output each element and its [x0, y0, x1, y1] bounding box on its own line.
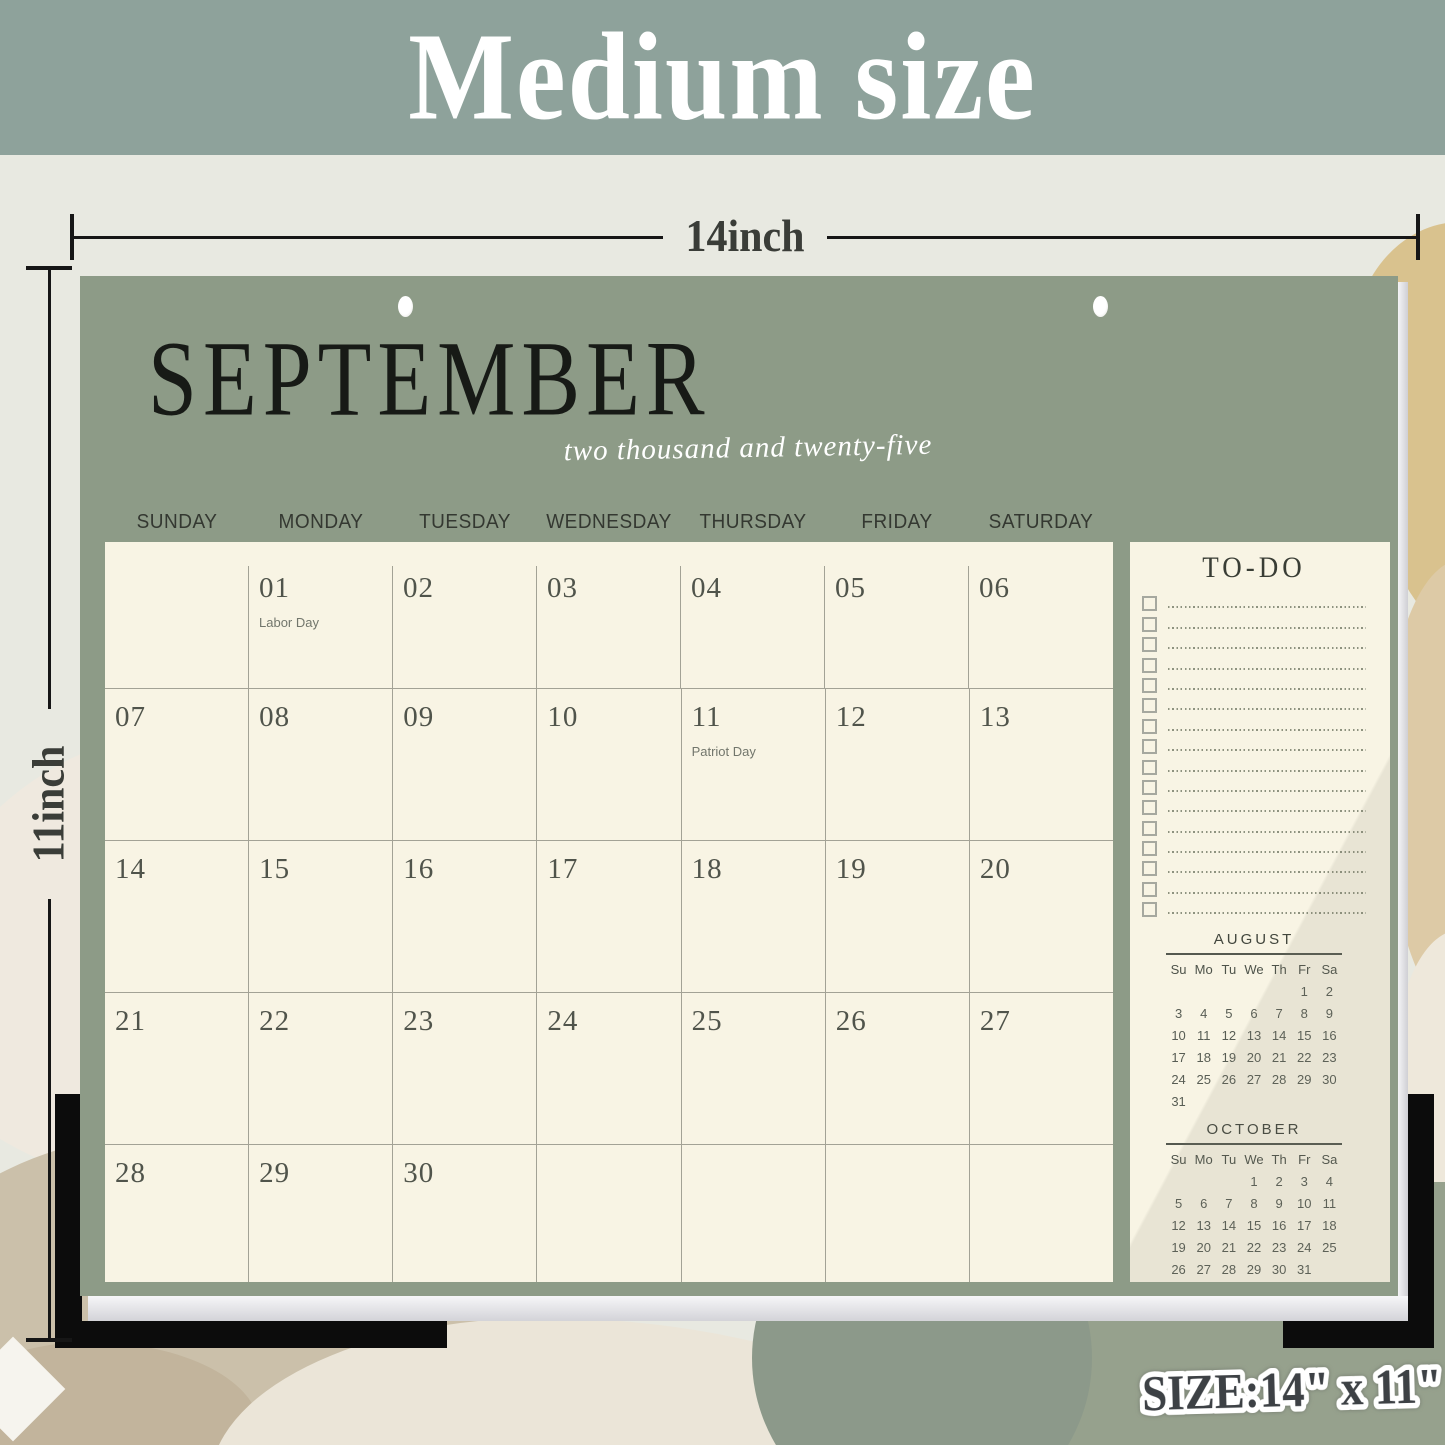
day-cell-20: 20 [969, 841, 1113, 992]
mini-calendar-august: AUGUSTSuMoTuWeThFrSa12345678910111213141… [1166, 931, 1342, 1113]
mini-day-23: 23 [1317, 1047, 1342, 1069]
calendar-week-row: 0708091011Patriot Day1213 [105, 688, 1113, 840]
todo-dotted-line [1168, 749, 1366, 751]
mini-day-empty [1191, 1091, 1216, 1113]
day-cell-01: 01Labor Day [249, 542, 393, 688]
mini-day-10: 10 [1166, 1025, 1191, 1047]
mini-day-19: 19 [1216, 1047, 1241, 1069]
mini-day-5: 5 [1216, 1003, 1241, 1025]
todo-checkbox [1142, 719, 1157, 734]
mini-day-empty [1166, 981, 1191, 1003]
todo-dotted-line [1168, 810, 1366, 812]
mini-day-22: 22 [1292, 1047, 1317, 1069]
mini-calendar-header-row: SuMoTuWeThFrSa [1166, 959, 1342, 981]
todo-checkbox [1142, 760, 1157, 775]
day-cell-15: 15 [248, 841, 392, 992]
weekday-label: THURSDAY [681, 511, 825, 540]
todo-dotted-line [1168, 708, 1366, 710]
day-number: 09 [403, 701, 530, 734]
dimension-line [74, 236, 663, 239]
todo-row [1142, 897, 1366, 917]
mini-day-6: 6 [1241, 1003, 1266, 1025]
day-number: 14 [115, 853, 242, 886]
mini-day-15: 15 [1292, 1025, 1317, 1047]
mini-day-19: 19 [1166, 1237, 1191, 1259]
day-cell-19: 19 [825, 841, 969, 992]
mini-calendar-week: 12131415161718 [1166, 1215, 1342, 1237]
day-cell-26: 26 [825, 993, 969, 1144]
mini-calendar-title: AUGUST [1166, 931, 1342, 948]
day-cell-10: 10 [536, 689, 680, 840]
weekday-row: SUNDAYMONDAYTUESDAYWEDNESDAYTHURSDAYFRID… [105, 512, 1113, 540]
mini-calendar-week: 3456789 [1166, 1003, 1342, 1025]
mini-day-empty [1191, 981, 1216, 1003]
day-number: 21 [115, 1005, 242, 1038]
mini-calendar-header-row: SuMoTuWeThFrSa [1166, 1149, 1342, 1171]
day-cell-05: 05 [825, 542, 969, 688]
day-number: 18 [692, 853, 819, 886]
product-image: Medium size 14inch 11inch SEPTEMBER two … [0, 0, 1445, 1445]
day-number: 13 [980, 701, 1107, 734]
todo-checkbox [1142, 678, 1157, 693]
dimension-line [48, 270, 51, 709]
mini-day-27: 27 [1241, 1069, 1266, 1091]
day-cell-empty [825, 1145, 969, 1282]
todo-checkbox [1142, 861, 1157, 876]
todo-row [1142, 673, 1366, 693]
day-cell-17: 17 [536, 841, 680, 992]
weekday-label: WEDNESDAY [537, 511, 681, 540]
dimension-line [827, 236, 1416, 239]
day-number: 12 [836, 701, 963, 734]
month-title: SEPTEMBER [148, 318, 848, 441]
todo-checkbox [1142, 596, 1157, 611]
mini-day-1: 1 [1241, 1171, 1266, 1193]
todo-row [1142, 815, 1366, 835]
mini-day-17: 17 [1292, 1215, 1317, 1237]
mini-day-4: 4 [1191, 1003, 1216, 1025]
mini-weekday-label: Sa [1317, 1149, 1342, 1171]
todo-dotted-line [1168, 606, 1366, 608]
mini-calendar-week: 567891011 [1166, 1193, 1342, 1215]
mini-day-29: 29 [1241, 1259, 1266, 1281]
mini-calendar-week: 12 [1166, 981, 1342, 1003]
mini-weekday-label: Tu [1216, 1149, 1241, 1171]
mini-day-26: 26 [1166, 1259, 1191, 1281]
day-cell-23: 23 [392, 993, 536, 1144]
width-dimension-label: 14inch [685, 211, 804, 263]
mini-day-3: 3 [1166, 1003, 1191, 1025]
todo-dotted-line [1168, 892, 1366, 894]
calendar-week-row: 21222324252627 [105, 992, 1113, 1144]
mini-calendar-week: 19202122232425 [1166, 1237, 1342, 1259]
hang-hole-left-icon [398, 296, 413, 317]
mini-weekday-label: Sa [1317, 959, 1342, 981]
mini-day-9: 9 [1267, 1193, 1292, 1215]
calendar-week-row: 282930 [105, 1144, 1113, 1282]
todo-row [1142, 652, 1366, 672]
todo-checkbox [1142, 698, 1157, 713]
year-script-subtitle: two thousand and twenty-five [548, 429, 949, 469]
weekday-label: TUESDAY [393, 511, 537, 540]
mini-day-15: 15 [1241, 1215, 1266, 1237]
mini-weekday-label: Tu [1216, 959, 1241, 981]
mini-calendar-week: 262728293031 [1166, 1259, 1342, 1281]
day-number: 20 [980, 853, 1107, 886]
mini-day-9: 9 [1317, 1003, 1342, 1025]
todo-dotted-line [1168, 729, 1366, 731]
day-number: 25 [692, 1005, 819, 1038]
holiday-label: Patriot Day [692, 744, 819, 759]
mini-weekday-label: Su [1166, 959, 1191, 981]
mini-day-empty [1317, 1259, 1342, 1281]
day-cell-empty [681, 1145, 825, 1282]
mini-day-30: 30 [1267, 1259, 1292, 1281]
day-cell-21: 21 [105, 993, 248, 1144]
mini-weekday-label: Mo [1191, 1149, 1216, 1171]
todo-dotted-line [1168, 871, 1366, 873]
holiday-label: Labor Day [259, 615, 387, 630]
day-number: 24 [547, 1005, 674, 1038]
mini-day-empty [1241, 1091, 1266, 1113]
banner: Medium size [0, 0, 1445, 155]
mini-weekday-label: Fr [1292, 1149, 1317, 1171]
mini-day-18: 18 [1191, 1047, 1216, 1069]
todo-row [1142, 856, 1366, 876]
mini-day-empty [1317, 1091, 1342, 1113]
mini-day-4: 4 [1317, 1171, 1342, 1193]
day-number: 22 [259, 1005, 386, 1038]
day-number: 08 [259, 701, 386, 734]
mini-calendars: AUGUSTSuMoTuWeThFrSa12345678910111213141… [1142, 931, 1366, 1281]
day-cell-28: 28 [105, 1145, 248, 1282]
mini-day-30: 30 [1317, 1069, 1342, 1091]
mini-day-31: 31 [1292, 1259, 1317, 1281]
todo-title: TO-DO [1142, 550, 1366, 584]
page-edge-right [1398, 282, 1408, 1298]
corner-shadow-right-vertical [1407, 1094, 1434, 1348]
mini-calendar-october: OCTOBERSuMoTuWeThFrSa1234567891011121314… [1166, 1121, 1342, 1281]
day-cell-empty [969, 1145, 1113, 1282]
day-number: 28 [115, 1157, 242, 1190]
todo-checkbox [1142, 821, 1157, 836]
weekday-label: FRIDAY [825, 511, 969, 540]
todo-checkbox [1142, 800, 1157, 815]
mini-day-29: 29 [1292, 1069, 1317, 1091]
page-edge-bottom [88, 1296, 1408, 1321]
hang-hole-right-icon [1093, 296, 1108, 317]
mini-day-13: 13 [1241, 1025, 1266, 1047]
mini-day-18: 18 [1317, 1215, 1342, 1237]
day-number: 06 [979, 572, 1107, 605]
mini-weekday-label: Fr [1292, 959, 1317, 981]
todo-checkbox [1142, 780, 1157, 795]
todo-dotted-line [1168, 668, 1366, 670]
todo-row [1142, 836, 1366, 856]
size-sticker-text: SIZE:14" x 11" [1141, 1357, 1442, 1421]
weekday-label: SUNDAY [105, 511, 249, 540]
mini-calendar-week: 10111213141516 [1166, 1025, 1342, 1047]
day-cell-12: 12 [825, 689, 969, 840]
todo-checkbox [1142, 739, 1157, 754]
corner-shadow-left-horizontal [55, 1321, 447, 1348]
mini-calendar-underline [1166, 953, 1342, 955]
todo-row [1142, 632, 1366, 652]
mini-day-11: 11 [1191, 1025, 1216, 1047]
height-dimension: 11inch [26, 266, 72, 1342]
mini-day-empty [1216, 1171, 1241, 1193]
todo-row [1142, 734, 1366, 754]
day-cell-30: 30 [392, 1145, 536, 1282]
mini-day-25: 25 [1317, 1237, 1342, 1259]
todo-row [1142, 775, 1366, 795]
day-cell-22: 22 [248, 993, 392, 1144]
todo-checkbox [1142, 902, 1157, 917]
day-number: 03 [547, 572, 675, 605]
mini-day-8: 8 [1241, 1193, 1266, 1215]
todo-checkbox [1142, 637, 1157, 652]
mini-day-3: 3 [1292, 1171, 1317, 1193]
day-cell-11: 11Patriot Day [681, 689, 825, 840]
todo-checkbox [1142, 882, 1157, 897]
mini-day-14: 14 [1216, 1215, 1241, 1237]
todo-dotted-line [1168, 790, 1366, 792]
mini-day-1: 1 [1292, 981, 1317, 1003]
side-panel: TO-DO AUGUSTSuMoTuWeThFrSa12345678910111… [1130, 542, 1390, 1282]
size-sticker: SIZE:14" x 11" [1133, 1326, 1445, 1445]
mini-day-22: 22 [1241, 1237, 1266, 1259]
mini-calendar-underline [1166, 1143, 1342, 1145]
day-cell-18: 18 [681, 841, 825, 992]
mini-day-23: 23 [1267, 1237, 1292, 1259]
mini-day-16: 16 [1317, 1025, 1342, 1047]
mini-day-2: 2 [1267, 1171, 1292, 1193]
todo-dotted-line [1168, 770, 1366, 772]
mini-calendar-week: 17181920212223 [1166, 1047, 1342, 1069]
todo-list [1142, 591, 1366, 917]
mini-calendar-week: 1234 [1166, 1171, 1342, 1193]
todo-row [1142, 795, 1366, 815]
mini-day-2: 2 [1317, 981, 1342, 1003]
day-number: 01 [259, 572, 387, 605]
day-cell-06: 06 [969, 542, 1113, 688]
weekday-label: MONDAY [249, 511, 393, 540]
todo-dotted-line [1168, 627, 1366, 629]
todo-checkbox [1142, 841, 1157, 856]
mini-calendar-week: 24252627282930 [1166, 1069, 1342, 1091]
todo-row [1142, 693, 1366, 713]
mini-day-empty [1216, 981, 1241, 1003]
mini-day-26: 26 [1216, 1069, 1241, 1091]
height-dimension-label: 11inch [23, 746, 75, 863]
weekday-label: SATURDAY [969, 511, 1113, 540]
day-number: 27 [980, 1005, 1107, 1038]
dimension-line [48, 899, 51, 1338]
day-cell-24: 24 [536, 993, 680, 1144]
mini-day-28: 28 [1216, 1259, 1241, 1281]
mini-day-11: 11 [1317, 1193, 1342, 1215]
day-cell-29: 29 [248, 1145, 392, 1282]
todo-row [1142, 754, 1366, 774]
todo-row [1142, 591, 1366, 611]
mini-day-24: 24 [1166, 1069, 1191, 1091]
mini-weekday-label: Su [1166, 1149, 1191, 1171]
mini-day-5: 5 [1166, 1193, 1191, 1215]
todo-row [1142, 713, 1366, 733]
mini-day-20: 20 [1241, 1047, 1266, 1069]
todo-row [1142, 876, 1366, 896]
day-cell-13: 13 [969, 689, 1113, 840]
day-number: 30 [403, 1157, 530, 1190]
mini-day-empty [1216, 1091, 1241, 1113]
day-cell-07: 07 [105, 689, 248, 840]
day-cell-25: 25 [681, 993, 825, 1144]
mini-day-16: 16 [1267, 1215, 1292, 1237]
day-cell-04: 04 [681, 542, 825, 688]
todo-row [1142, 611, 1366, 631]
mini-day-31: 31 [1166, 1091, 1191, 1113]
mini-day-12: 12 [1216, 1025, 1241, 1047]
day-cell-14: 14 [105, 841, 248, 992]
todo-dotted-line [1168, 688, 1366, 690]
mini-day-6: 6 [1191, 1193, 1216, 1215]
mini-calendar-title: OCTOBER [1166, 1121, 1342, 1138]
dimension-cap-bottom-icon [26, 1338, 72, 1342]
day-number: 11 [692, 701, 819, 734]
mini-day-14: 14 [1267, 1025, 1292, 1047]
todo-dotted-line [1168, 831, 1366, 833]
mini-day-13: 13 [1191, 1215, 1216, 1237]
mini-day-empty [1292, 1091, 1317, 1113]
day-cell-02: 02 [393, 542, 537, 688]
calendar-week-row: 14151617181920 [105, 840, 1113, 992]
day-number: 05 [835, 572, 963, 605]
mini-weekday-label: Th [1267, 1149, 1292, 1171]
calendar-week-row: 01Labor Day0203040506 [105, 542, 1113, 688]
day-number: 17 [547, 853, 674, 886]
day-number: 02 [403, 572, 531, 605]
day-number: 23 [403, 1005, 530, 1038]
todo-checkbox [1142, 658, 1157, 673]
mini-day-27: 27 [1191, 1259, 1216, 1281]
day-cell-09: 09 [392, 689, 536, 840]
day-number: 15 [259, 853, 386, 886]
mini-day-17: 17 [1166, 1047, 1191, 1069]
height-dimension-label-wrap: 11inch [0, 709, 107, 899]
mini-weekday-label: We [1241, 1149, 1266, 1171]
mini-day-25: 25 [1191, 1069, 1216, 1091]
mini-day-28: 28 [1267, 1069, 1292, 1091]
mini-day-8: 8 [1292, 1003, 1317, 1025]
day-cell-16: 16 [392, 841, 536, 992]
mini-day-24: 24 [1292, 1237, 1317, 1259]
mini-weekday-label: Mo [1191, 959, 1216, 981]
mini-day-empty [1241, 981, 1266, 1003]
mini-weekday-label: We [1241, 959, 1266, 981]
mini-day-21: 21 [1216, 1237, 1241, 1259]
day-cell-03: 03 [537, 542, 681, 688]
mini-day-7: 7 [1267, 1003, 1292, 1025]
day-cell-27: 27 [969, 993, 1113, 1144]
todo-dotted-line [1168, 912, 1366, 914]
mini-weekday-label: Th [1267, 959, 1292, 981]
day-number: 07 [115, 701, 242, 734]
day-number: 16 [403, 853, 530, 886]
mini-day-12: 12 [1166, 1215, 1191, 1237]
mini-day-20: 20 [1191, 1237, 1216, 1259]
mini-day-empty [1267, 1091, 1292, 1113]
calendar-grid: 01Labor Day02030405060708091011Patriot D… [105, 542, 1113, 1282]
day-number: 04 [691, 572, 819, 605]
day-number: 26 [836, 1005, 963, 1038]
dimension-cap-right-icon [1416, 214, 1420, 260]
day-number: 19 [836, 853, 963, 886]
mini-day-empty [1267, 981, 1292, 1003]
day-cell-08: 08 [248, 689, 392, 840]
todo-dotted-line [1168, 647, 1366, 649]
mini-day-empty [1191, 1171, 1216, 1193]
todo-dotted-line [1168, 851, 1366, 853]
mini-day-10: 10 [1292, 1193, 1317, 1215]
mini-day-21: 21 [1267, 1047, 1292, 1069]
todo-checkbox [1142, 617, 1157, 632]
width-dimension: 14inch [70, 214, 1420, 260]
day-number: 29 [259, 1157, 386, 1190]
day-cell-empty [536, 1145, 680, 1282]
banner-title: Medium size [408, 5, 1037, 149]
day-number: 10 [547, 701, 674, 734]
mini-calendar-week: 31 [1166, 1091, 1342, 1113]
mini-day-7: 7 [1216, 1193, 1241, 1215]
mini-day-empty [1166, 1171, 1191, 1193]
day-cell-empty [105, 542, 249, 688]
